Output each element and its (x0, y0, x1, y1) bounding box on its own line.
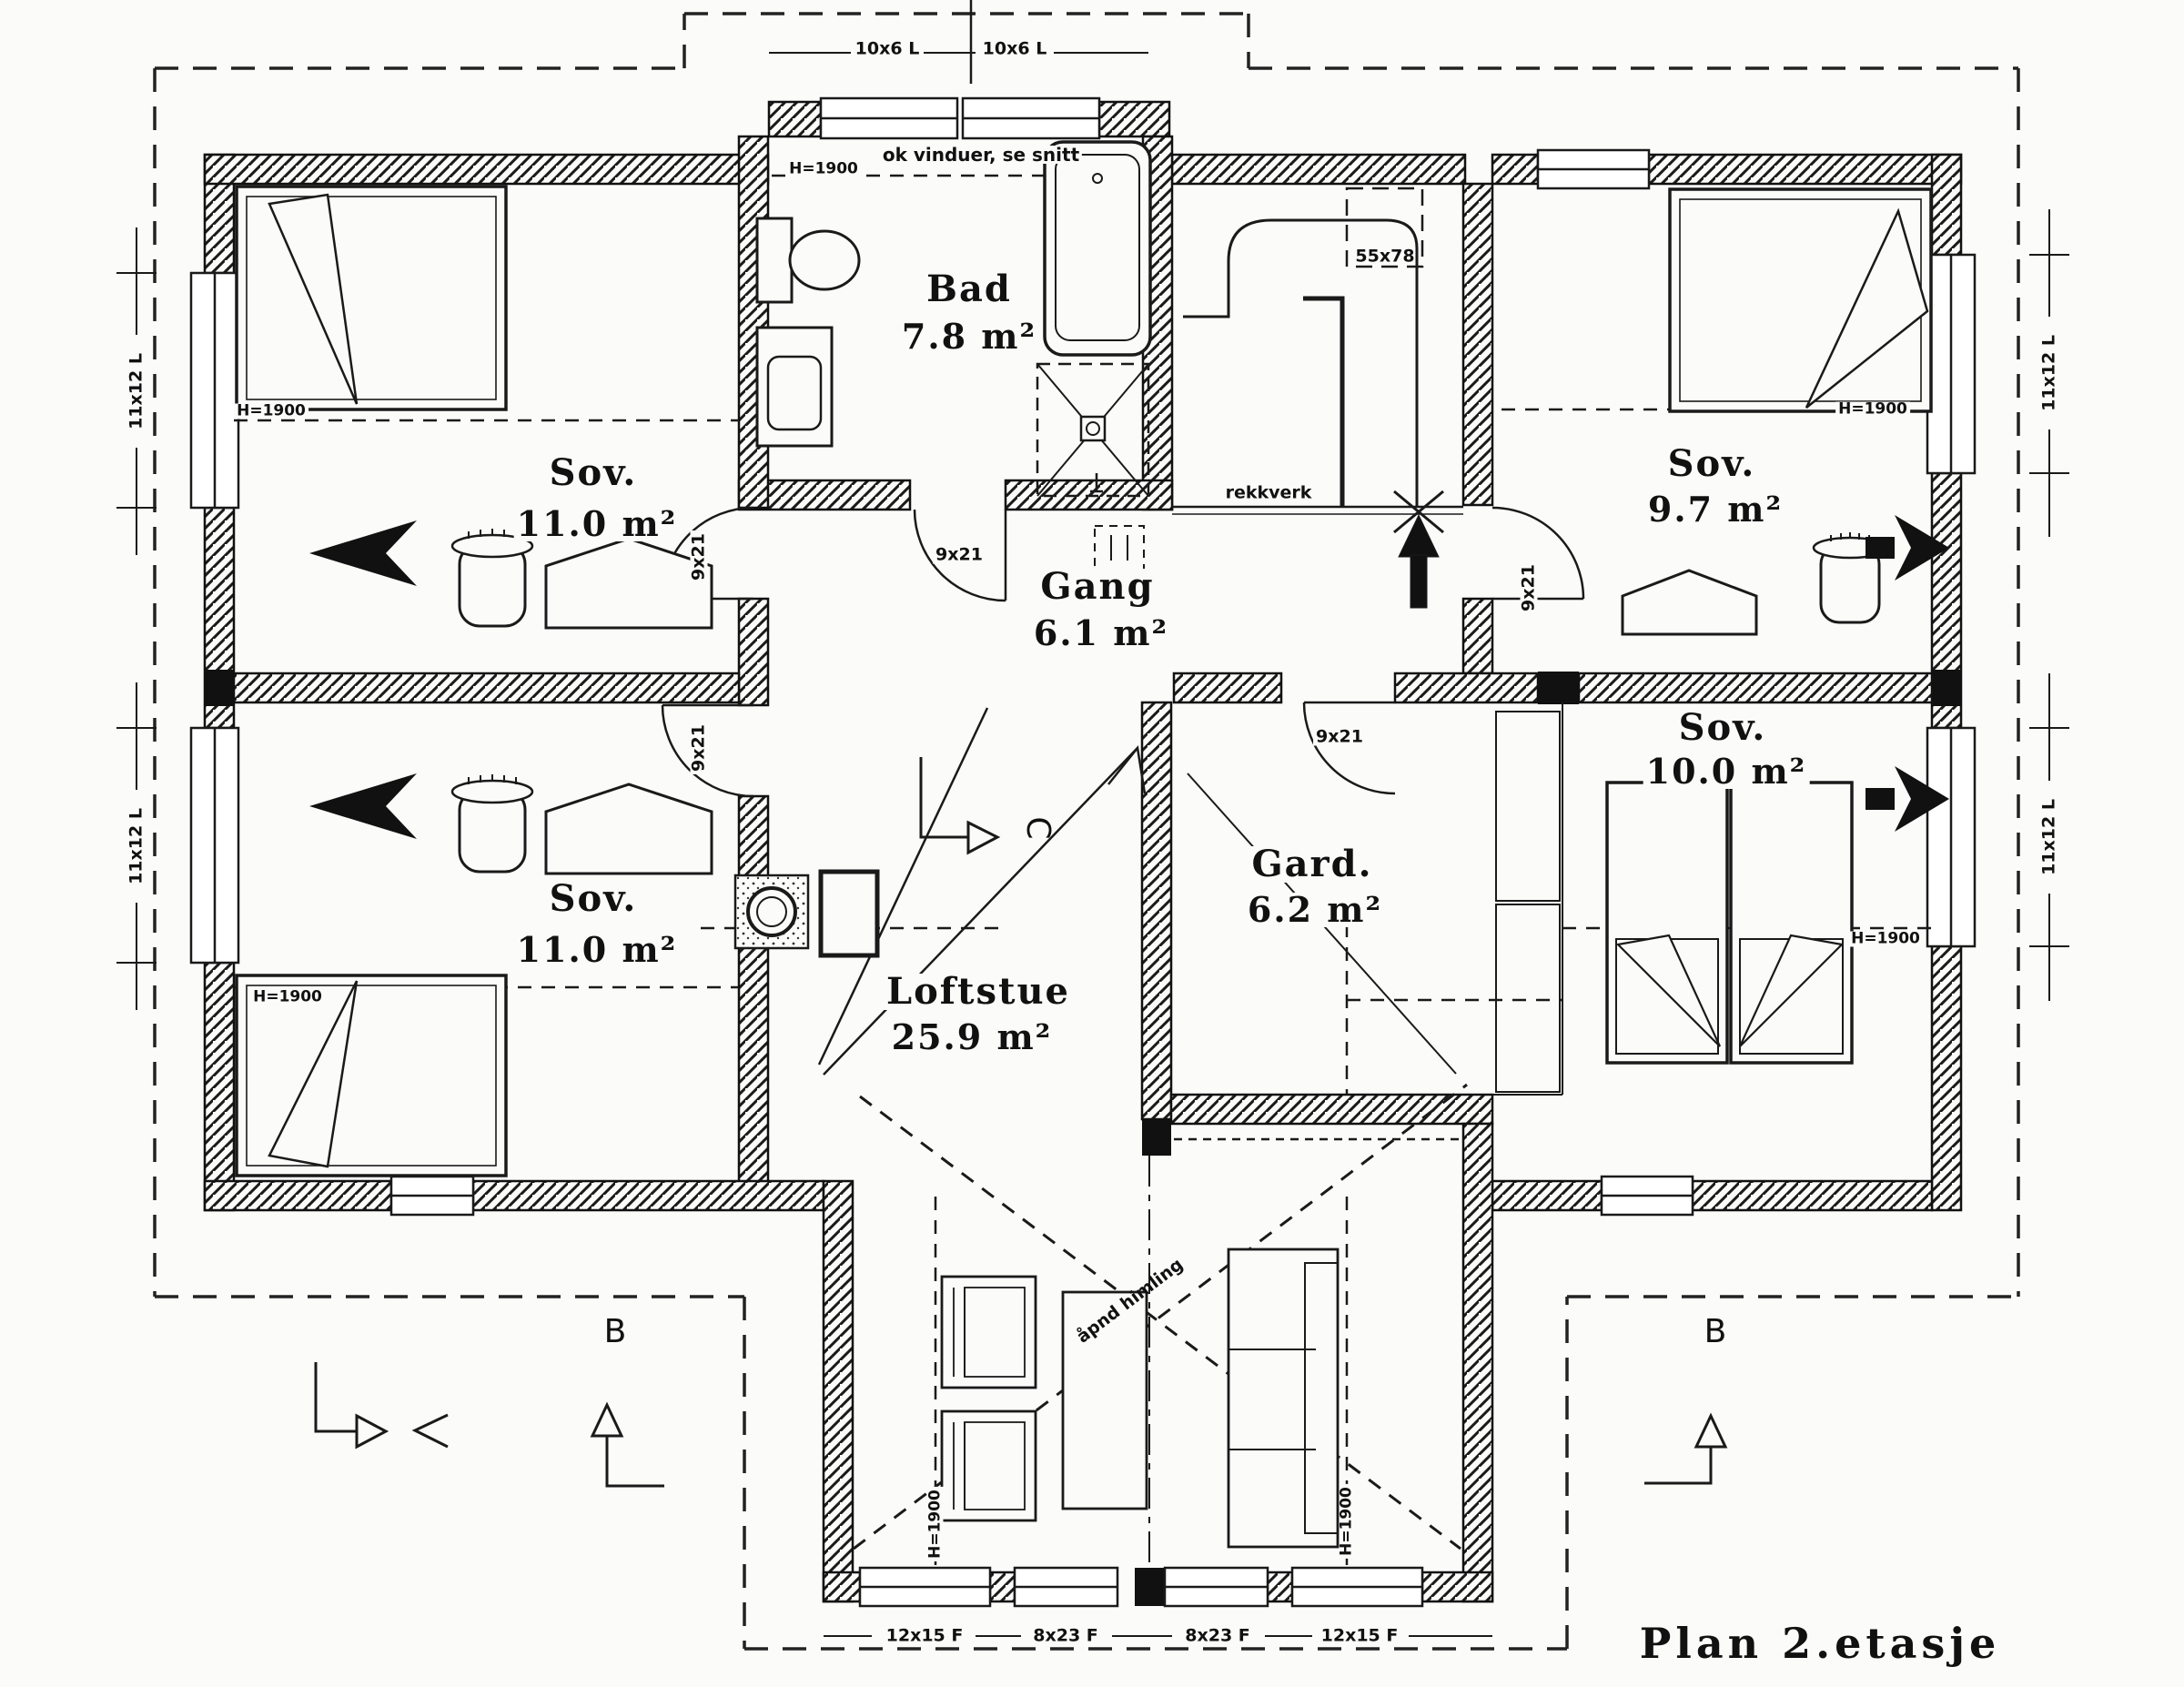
height-label: H=1900 (250, 990, 325, 1005)
side-window (1927, 255, 1975, 473)
side-window-label: 11x12 L (2041, 796, 2058, 878)
armchair-icon (942, 1277, 1036, 1388)
room-name-gard: Gard. (1249, 846, 1375, 883)
room-area-sov-bottom-left: 11.0 m² (514, 933, 681, 967)
floor-plan-canvas: Bad 7.8 m² Sov. 11.0 m² Sov. 11.0 m² Sov… (0, 0, 2184, 1687)
toilet-icon (757, 218, 859, 302)
section-arrow-icon (1644, 1416, 1725, 1483)
room-name-sov-top-right: Sov. (1665, 446, 1759, 482)
double-bed (1607, 783, 1852, 1063)
railing-label: rekkverk (1223, 485, 1315, 502)
room-name-loftstue: Loftstue (884, 974, 1073, 1010)
bottom-window (1602, 1177, 1693, 1215)
side-window (1927, 728, 1975, 946)
dormer-window-label: 10x6 L (853, 41, 923, 58)
stair (1172, 188, 1463, 608)
section-arrow-icon (592, 1405, 664, 1486)
windows-note: ok vinduer, se snitt (880, 146, 1082, 164)
dormer-window (821, 98, 957, 138)
shower-icon (1037, 364, 1148, 496)
wardrobe-icon (1623, 571, 1756, 634)
section-arrow-icon (316, 1362, 386, 1447)
roof-window-label: 55x78 (1352, 248, 1417, 266)
section-label-c: C (1021, 813, 1054, 842)
room-name-sov-bottom-left: Sov. (547, 881, 641, 917)
room-area-sov-top-left: 11.0 m² (514, 507, 681, 541)
exit-arrow-icon (309, 520, 417, 586)
bottom-window-label: 12x15 F (884, 1628, 966, 1645)
door-label: 9x21 (1521, 561, 1538, 614)
dormer-window (963, 98, 1099, 138)
room-area-bad: 7.8 m² (899, 319, 1039, 354)
chimney-icon (735, 875, 808, 948)
top-window (1538, 150, 1649, 188)
room-name-sov-bottom-right: Sov. (1676, 710, 1770, 746)
section-label-b: B (1702, 1316, 1730, 1349)
room-area-loftstue: 25.9 m² (889, 1020, 1056, 1055)
door-label: 9x21 (1313, 729, 1366, 746)
door-label: 9x21 (691, 722, 708, 774)
section-arrow-icon (921, 757, 997, 853)
stool-icon (452, 774, 532, 872)
wardrobe-icon (546, 784, 712, 874)
room-name-gang: Gang (1037, 569, 1157, 605)
door-label: 9x21 (933, 547, 986, 564)
armchair-icon (942, 1411, 1036, 1520)
exit-arrow-icon (309, 773, 417, 839)
duct-icon (821, 872, 877, 955)
bottom-window (860, 1568, 990, 1606)
room-area-sov-bottom-right: 10.0 m² (1643, 754, 1810, 789)
height-label: H=1900 (1835, 402, 1910, 418)
side-window (191, 273, 238, 508)
side-window (191, 728, 238, 963)
section-chevron-icon (415, 1415, 448, 1447)
bottom-window (1165, 1568, 1268, 1606)
room-area-sov-top-right: 9.7 m² (1645, 492, 1785, 527)
room-area-gard: 6.2 m² (1245, 893, 1385, 927)
height-label: H=1900 (786, 162, 861, 177)
dormer-window-label: 10x6 L (980, 41, 1050, 58)
wardrobe-icon (546, 539, 712, 628)
bottom-window-label: 12x15 F (1319, 1628, 1401, 1645)
height-label: H=1900 (1340, 1484, 1355, 1559)
door-label: 9x21 (691, 530, 708, 583)
side-window-label: 11x12 L (128, 805, 146, 887)
room-name-bad: Bad (924, 271, 1015, 308)
bottom-window (391, 1177, 473, 1215)
bottom-window-label: 8x23 F (1030, 1628, 1101, 1645)
door-arc (1304, 702, 1395, 793)
bottom-window-label: 8x23 F (1182, 1628, 1253, 1645)
stair-up-arrow-icon (1394, 491, 1443, 608)
stair-edge (1303, 298, 1342, 507)
sofa-icon (1228, 1249, 1338, 1547)
bed (237, 187, 506, 409)
section-label-b: B (602, 1316, 630, 1349)
bottom-window (1015, 1568, 1117, 1606)
side-window-label: 11x12 L (2041, 332, 2058, 414)
height-label: H=1900 (1848, 932, 1923, 947)
room-area-gang: 6.1 m² (1031, 616, 1171, 651)
bathtub-icon (1045, 142, 1150, 355)
side-window-label: 11x12 L (128, 350, 146, 432)
plan-title: Plan 2.etasje (1637, 1622, 2003, 1664)
room-name-sov-top-left: Sov. (547, 455, 641, 491)
height-label: H=1900 (234, 404, 308, 419)
bed (1670, 189, 1931, 411)
height-label: H=1900 (928, 1487, 944, 1561)
floor-plan-drawing (0, 0, 2184, 1687)
bottom-window (1292, 1568, 1422, 1606)
gang-hatch-icon (1095, 526, 1144, 570)
